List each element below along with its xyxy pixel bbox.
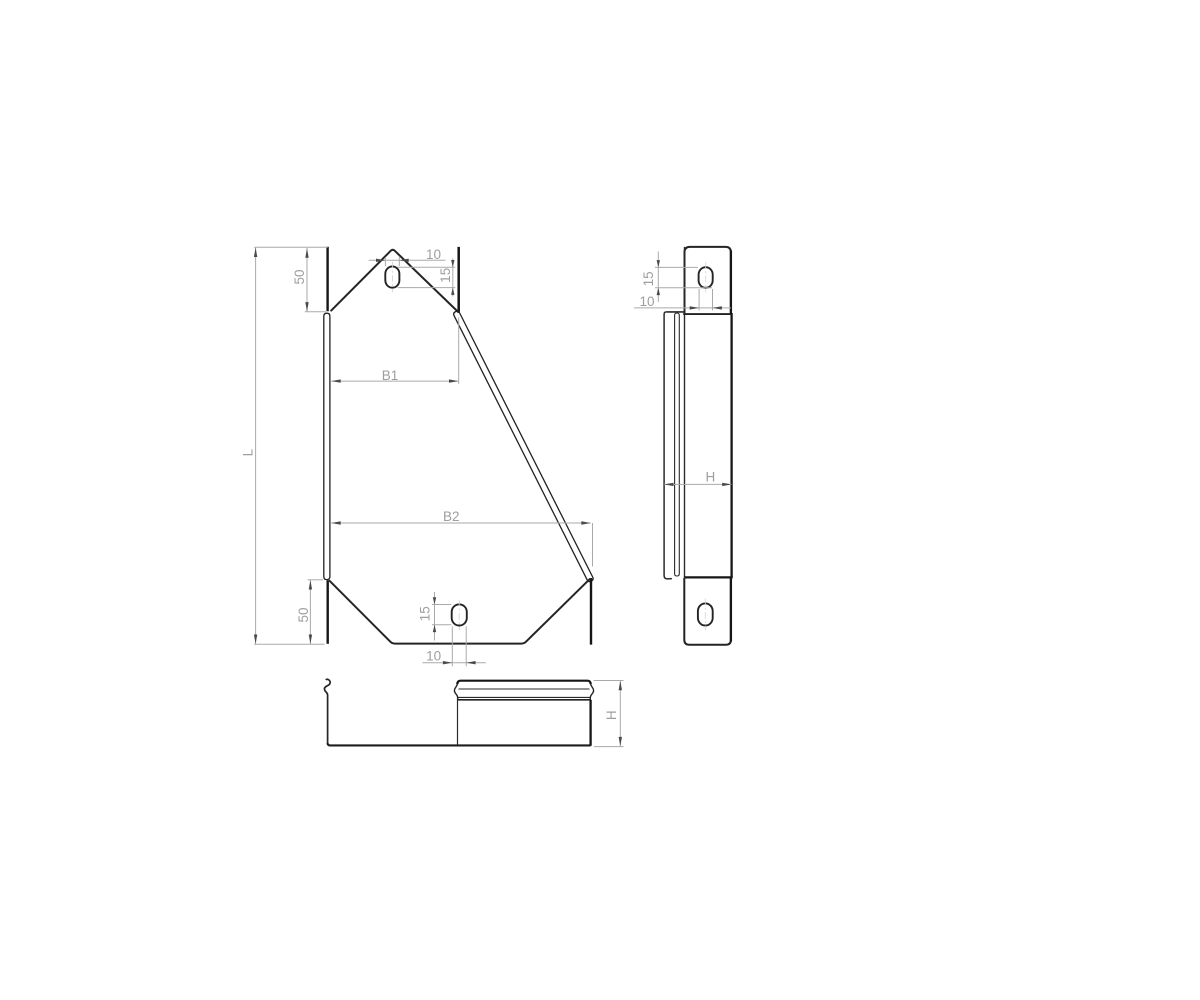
svg-text:50: 50: [296, 607, 311, 622]
svg-text:B1: B1: [382, 368, 399, 383]
svg-text:B2: B2: [443, 509, 460, 524]
svg-text:H: H: [706, 470, 716, 485]
svg-text:15: 15: [641, 271, 656, 286]
svg-text:10: 10: [426, 247, 441, 262]
svg-text:50: 50: [292, 269, 307, 284]
svg-text:10: 10: [426, 648, 441, 663]
svg-text:10: 10: [639, 294, 654, 309]
svg-text:15: 15: [418, 606, 433, 621]
svg-text:L: L: [241, 448, 256, 456]
svg-text:15: 15: [438, 268, 453, 283]
svg-text:H: H: [604, 710, 619, 720]
